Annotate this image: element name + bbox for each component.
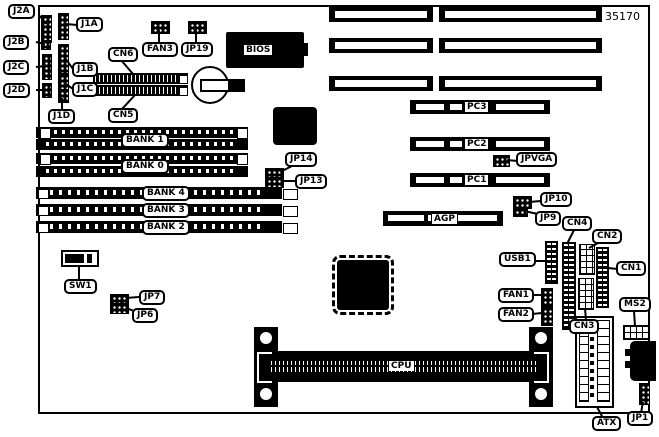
label-bank1: BANK 1 — [121, 133, 169, 148]
label-cn3: CN3 — [569, 319, 599, 334]
label-jpvga: JPVGA — [516, 152, 557, 167]
label-j1b: J1B — [72, 62, 98, 77]
label-jp1: JP1 — [627, 411, 653, 426]
label-cn2: CN2 — [592, 229, 622, 244]
label-j2a: J2A — [8, 4, 35, 19]
label-agp: AGP — [431, 213, 458, 225]
label-cn1: CN1 — [616, 261, 646, 276]
label-cn6: CN6 — [108, 47, 138, 62]
label-j1c: J1C — [72, 82, 98, 97]
label-usb1: USB1 — [499, 252, 536, 267]
label-bios: BIOS — [243, 44, 273, 56]
label-jp7: JP7 — [139, 290, 165, 305]
label-pc2: PC2 — [464, 138, 489, 150]
label-jp13: JP13 — [295, 174, 327, 189]
label-j1a: J1A — [76, 17, 103, 32]
label-j2d: J2D — [3, 83, 30, 98]
label-pc1: PC1 — [464, 174, 489, 186]
label-jp14: JP14 — [285, 152, 317, 167]
label-bank0: BANK 0 — [121, 159, 169, 174]
label-cpu: CPU — [389, 361, 414, 371]
label-jp10: JP10 — [540, 192, 572, 207]
label-sw1: SW1 — [64, 279, 97, 294]
motherboard-diagram: J2A J2B J2C J2D J1A J1B J1C J1D CN6 CN5 … — [0, 0, 659, 437]
label-j2c: J2C — [3, 60, 29, 75]
label-j1d: J1D — [48, 109, 75, 124]
label-bank4: BANK 4 — [142, 186, 190, 201]
label-ms2: MS2 — [619, 297, 651, 312]
label-jp9: JP9 — [535, 211, 561, 226]
label-fan1: FAN1 — [498, 288, 534, 303]
label-jp19: JP19 — [181, 42, 213, 57]
label-pc3: PC3 — [464, 101, 489, 113]
label-bank2: BANK 2 — [142, 220, 190, 235]
label-bank3: BANK 3 — [142, 203, 190, 218]
label-cn4: CN4 — [562, 216, 592, 231]
label-j2b: J2B — [3, 35, 29, 50]
label-jp6: JP6 — [132, 308, 158, 323]
label-atx: ATX — [592, 416, 621, 431]
part-number: 35170 — [605, 10, 640, 23]
label-cn5: CN5 — [108, 108, 138, 123]
label-fan3: FAN3 — [142, 42, 178, 57]
label-fan2: FAN2 — [498, 307, 534, 322]
